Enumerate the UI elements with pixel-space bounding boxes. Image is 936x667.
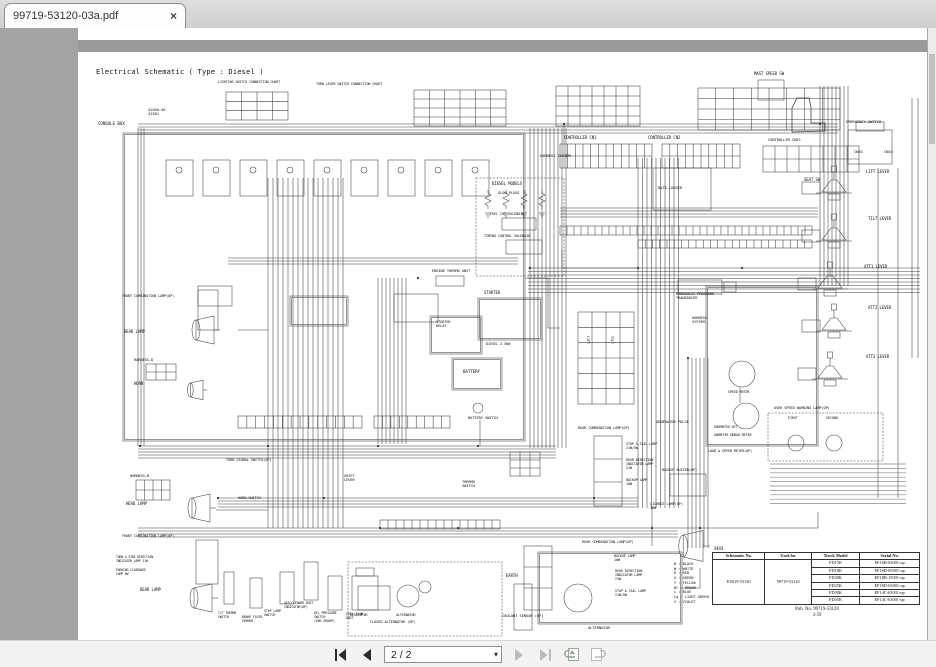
schematic-label: EARTH (506, 574, 518, 579)
schematic-label: STOP & TAIL LAMP 21W/5W (615, 589, 646, 597)
truck-model-cell: FD15K (811, 560, 859, 567)
page-number-value: 2 / 2 (391, 649, 494, 661)
spec-table-block: MHI Schematic No.Used forTruck ModelSeri… (712, 547, 922, 620)
spec-header-cell: Truck Model (811, 553, 859, 560)
schematic-label: FRONT COMBINATION LAMP(OP) (122, 294, 174, 298)
serial-no-cell: EF18B-15001-up (860, 575, 920, 582)
schematic-label: REAR COMBINATION LAMP(OP) (578, 426, 630, 430)
page-nav-group: 2 / 2 ▾ (330, 646, 606, 664)
schematic-label: TILT (610, 336, 614, 344)
schematic-label: STARTER (484, 291, 500, 296)
legend-item: Lg : LIGHT GREEN (674, 595, 709, 600)
tab-bar: 99719-53120-03a.pdf × (0, 0, 936, 29)
schematic-label: ALTERNATOR (396, 613, 415, 617)
schematic-label: REAR COMBINATION LAMP(OP) (582, 540, 634, 544)
schematic-label: ALTERNATOR (588, 626, 610, 630)
schematic-label: DATA LOGGER (658, 186, 682, 190)
scrollbar-thumb[interactable] (929, 54, 935, 144)
schematic-label: HORN SWITCH (238, 496, 261, 500)
spec-table: Schematic No.Used forTruck ModelSerial N… (712, 552, 920, 605)
schematic-label: FIRST (788, 416, 798, 420)
next-view-icon[interactable] (588, 647, 606, 663)
schematic-label: HARNESS,B (130, 474, 149, 478)
schematic-label: LIFT LEVER (866, 170, 889, 175)
schematic-label: HYDRAULIC PRESSURE TRANSDUCER (676, 292, 714, 301)
schematic-label: ODOMETER SET (714, 434, 735, 438)
schematic-label: T/C THERMO SWITCH (218, 612, 236, 620)
spec-header-cell: Schematic No. (713, 553, 765, 560)
schematic-label: DIESEL 2.5KW (486, 342, 510, 346)
schematic-label: TURN SIGNAL SWITCH(OP) (226, 458, 271, 462)
truck-model-cell: FD25K (811, 582, 859, 589)
viewer-area: Electrical Schematic ( Type : Diesel ) C… (0, 28, 936, 640)
schematic-label: TURN LEVER SWITCH CONNECTION CHART (316, 82, 382, 86)
schematic-label: PARKING CLEARANCE LAMP 8W (116, 569, 146, 576)
spec-header-cell: Used for (765, 553, 811, 560)
schematic-label: LIFT (586, 336, 590, 344)
serial-no-cell: EF16B-63001-up (860, 560, 920, 567)
schematic-label: FUEL CUT SOLENOID (490, 212, 524, 216)
schematic-label: ATT3 LEVER (866, 355, 889, 360)
schematic-label: BATTERY SWITCH (468, 416, 498, 420)
schematic-label: CLOSED ALTERNATOR (OP) (370, 620, 415, 624)
schematic-label: CONSOLE BOX (98, 122, 125, 127)
schematic-label: FRONT COMBINATION LAMP(OP) (122, 534, 174, 538)
schematic-label: REAR DIRECTION INDICATOR LAMP 21W (615, 569, 642, 581)
pdf-viewer-window: 99719-53120-03a.pdf × Electrical Schemat… (0, 0, 936, 667)
next-page-button[interactable] (509, 646, 529, 664)
schematic-label: FUEL TANK UNIT (346, 612, 363, 620)
schematic-label: GLOW PLUGS (498, 191, 519, 195)
schematic-label: REAR LAMP (140, 588, 161, 593)
previous-page-icon (360, 648, 374, 662)
schematic-label: CN54 (884, 150, 893, 154)
schematic-label: SHIFT LEVER (344, 474, 355, 483)
pdf-page: Electrical Schematic ( Type : Diesel ) C… (78, 28, 929, 640)
serial-no-cell: EF14C-65001-up (860, 590, 920, 597)
schematic-label: OVER SPEED WARNING LAMP(OP) (774, 406, 830, 410)
schematic-label: HOURMETER SET (714, 426, 737, 430)
schematic-label: SECOND (826, 416, 838, 420)
bottom-toolbar: 2 / 2 ▾ (0, 640, 936, 667)
schematic-label: OIL PRESSURE SWITCH (ENG GROUP) (314, 612, 337, 624)
schematic-label: DIESEL MODELS (492, 182, 522, 187)
schematic-label: SEAT SW (804, 178, 820, 183)
schematic-label: HARNESS SYSTEM (540, 154, 571, 158)
truck-model-cell: FD35K (811, 597, 859, 604)
schematic-label: HARNESS SYSTEM (692, 316, 707, 325)
truck-model-cell: FD30K (811, 590, 859, 597)
schematic-label: STOP & TAIL LAMP 21W/5W (626, 442, 657, 450)
schematic-label: BACKUP LAMP 10W (626, 478, 647, 486)
first-page-button[interactable] (330, 646, 350, 664)
schematic-label: ENGINE THERMO UNIT (432, 269, 470, 273)
schematic-label: SPEED METER (728, 390, 749, 394)
previous-page-button[interactable] (357, 646, 377, 664)
schematic-label: LICENCE LAMP(OP) 10W (650, 502, 683, 510)
schematic-label: BRAKE FLUID SENSOR (242, 616, 262, 624)
dropdown-caret-icon[interactable]: ▾ (494, 651, 498, 659)
schematic-label: STOP LAMP SWITCH (264, 610, 281, 618)
spec-schematic-no: ES019-53120 (713, 560, 765, 604)
schematic-label: EMERGENCY SWITCH (846, 120, 881, 124)
schematic-label: TIMING CONTROL SOLENOID (484, 234, 530, 238)
schematic-label: STARTER RELAY (436, 320, 450, 328)
tab-title: 99719-53120-03a.pdf (13, 10, 164, 22)
schematic-label: HORN (134, 382, 143, 387)
schematic-label: HEAD LAMP (126, 502, 147, 507)
wire-color-legend: B : BLACKW : WHITER : REDG : GREENY : YE… (674, 562, 709, 604)
first-page-icon (333, 648, 347, 662)
spec-used-for: 99719-53120 (765, 560, 811, 604)
tab-close-icon[interactable]: × (164, 9, 177, 23)
schematic-label: THERMO SWITCH (462, 480, 475, 489)
schematic-label: CONTROLLER CN51 (768, 138, 801, 142)
last-page-icon (539, 648, 553, 662)
schematic-label: 41050-46 41581 (148, 108, 166, 117)
schematic-label: HEAD LAMP (124, 330, 145, 335)
schematic-label: TURN & SIDE DIRECTION INDICATOR LAMP 21W (116, 556, 153, 563)
schematic-title: Electrical Schematic ( Type : Diesel ) (96, 68, 264, 76)
vertical-scrollbar[interactable] (927, 28, 936, 640)
schematic-label: BATTERY (463, 370, 480, 375)
schematic-label: BACKUP BUZZER(OP) (662, 468, 697, 472)
previous-view-icon[interactable] (563, 647, 581, 663)
table-row: ES019-5312099719-53120FD15KEF16B-63001-u… (713, 560, 920, 567)
schematic-label: AIR CLEANER DUST INDICATOR(OP) (284, 602, 313, 610)
schematic-label: CONTROLLER CN1 (564, 136, 596, 141)
serial-no-cell: EF18D-85001-up (860, 567, 920, 574)
schematic-label: HARNESS,D (134, 358, 153, 362)
schematic-label: CONTROLLER CN2 (648, 136, 680, 141)
truck-model-cell: FD20K (811, 575, 859, 582)
schematic-label: TILT LEVER (868, 217, 891, 222)
document-tab[interactable]: 99719-53120-03a.pdf × (4, 3, 186, 28)
schematic-label: BACKUP LAMP 10W (614, 554, 635, 562)
page-number-field[interactable]: 2 / 2 ▾ (384, 646, 502, 663)
truck-model-cell: FD18K (811, 567, 859, 574)
schematic-label: COOLANT SENSOR (OP) (502, 614, 544, 618)
serial-no-cell: EF18D-63001-up (860, 582, 920, 589)
schematic-label: GENERATOR PULSE (656, 420, 689, 424)
legend-item: V : VIOLET (674, 600, 709, 605)
publication-number: Pub. No. 99719-53120 3-59 (712, 607, 922, 620)
serial-no-cell: EF14C-63001-up (860, 597, 920, 604)
next-page-icon (512, 648, 526, 662)
schematic-label: REAR DIRECTION INDICATOR LAMP 21W (626, 458, 653, 470)
schematic-label: LIGHTING SWITCH CONNECTION CHART (218, 80, 280, 84)
schematic-label: ATT2 LEVER (868, 306, 891, 311)
schematic-label: ATT1 LEVER (864, 265, 887, 270)
schematic-label: LOAD & SPEED METER(OP) (708, 449, 752, 453)
schematic-label: CN53 (854, 150, 863, 154)
spec-header-cell: Serial No. (860, 553, 920, 560)
last-page-button[interactable] (536, 646, 556, 664)
schematic-label: MAST SPEED SW (754, 72, 784, 77)
